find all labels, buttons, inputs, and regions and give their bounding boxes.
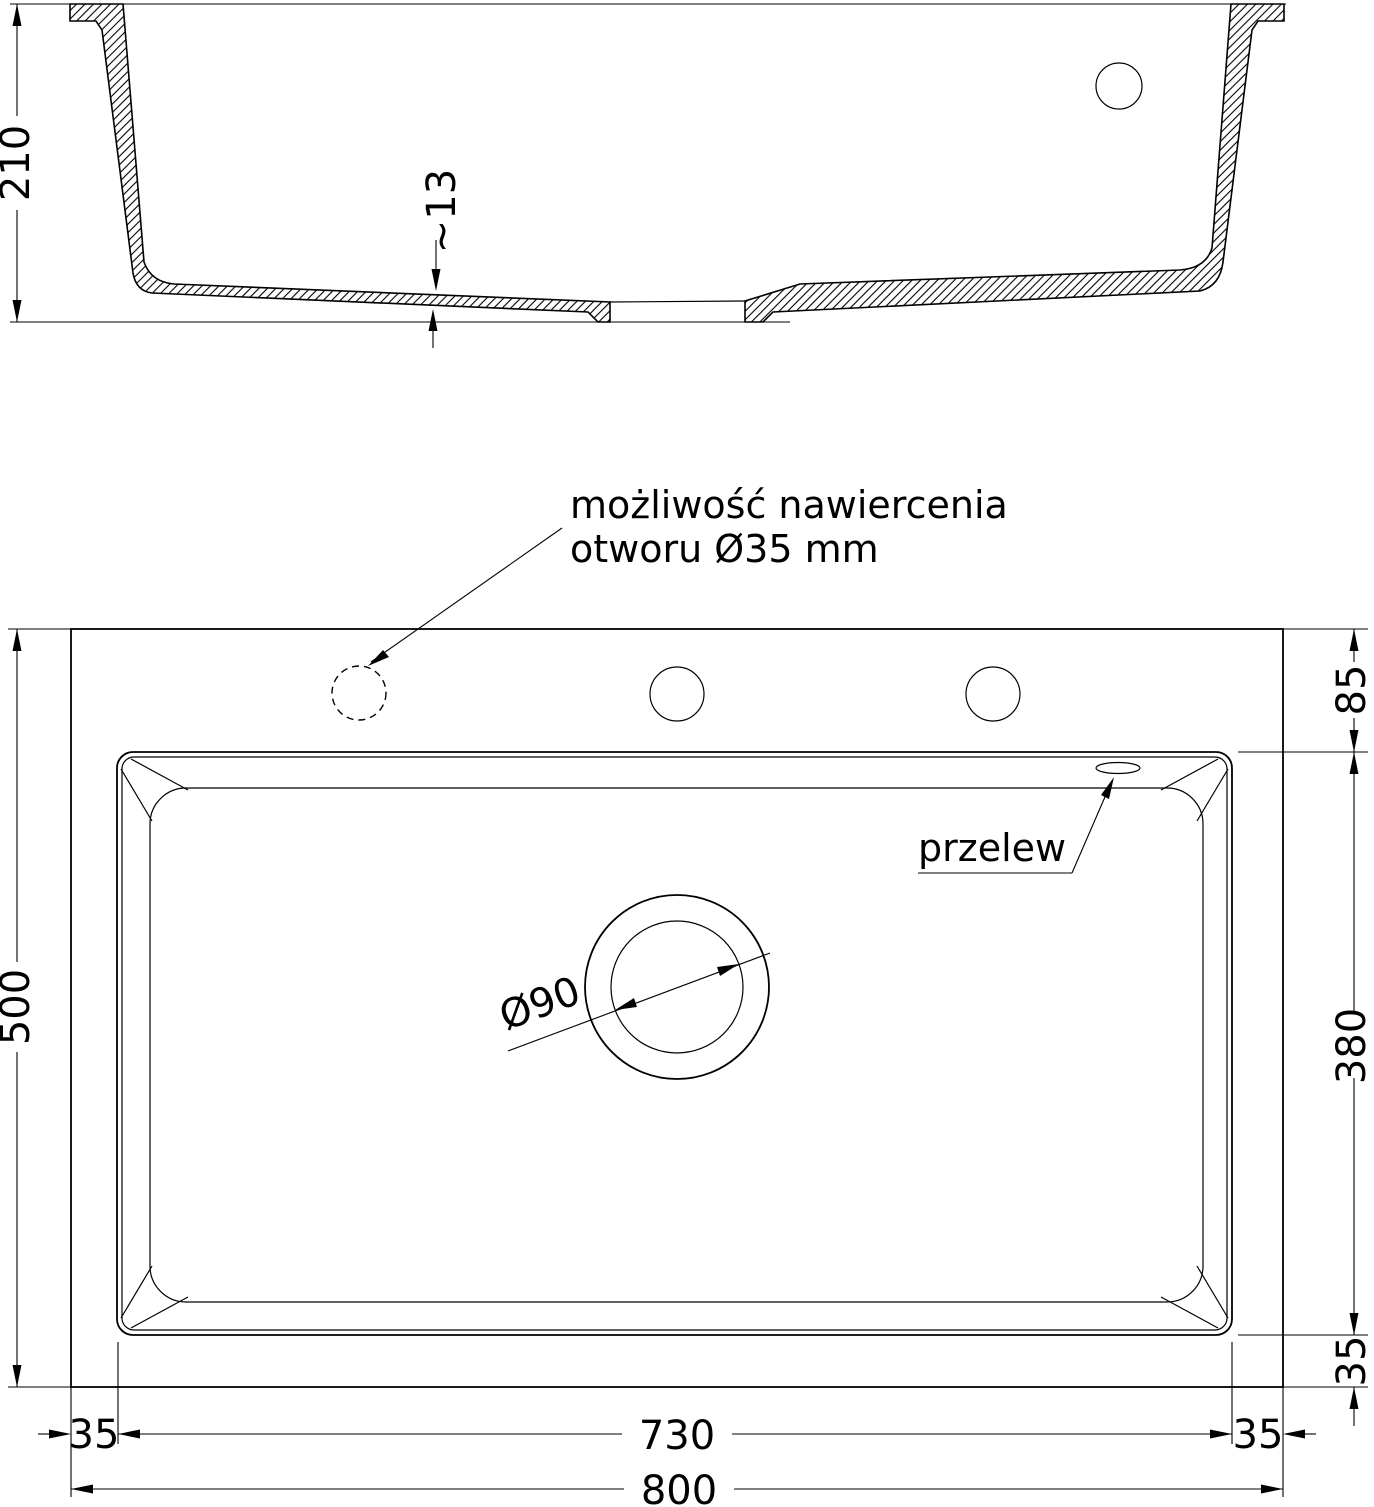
plan-right-offset-dimension: 35	[1233, 1412, 1316, 1458]
sink-technical-drawing-page: 210 ~13	[0, 0, 1374, 1507]
plan-overflow-slot	[1096, 763, 1140, 774]
overflow-callout: przelew	[918, 777, 1114, 873]
plan-drain-inner-circle	[611, 921, 743, 1053]
section-drain-gap-line	[610, 301, 745, 302]
plan-depth-dim-text: 500	[0, 969, 39, 1045]
section-thickness-dimension: ~13	[419, 169, 465, 348]
plan-bottom-offset-dimension: 35	[1283, 1336, 1374, 1426]
arrowhead-lower-left	[615, 998, 637, 1010]
plan-bowl-depth-dim-text: 380	[1329, 1008, 1374, 1084]
section-left-wall-profile	[70, 4, 610, 322]
drill-note-line1: możliwość nawiercenia	[570, 483, 1008, 527]
section-thickness-dim-text: ~13	[419, 169, 465, 253]
arrowhead-upper-right	[717, 964, 739, 976]
plan-drain-outer-circle	[585, 895, 769, 1079]
plan-width-dimension: 800	[71, 1468, 1283, 1507]
plan-top-offset-dim-text: 85	[1329, 665, 1374, 716]
plan-outer-rect	[71, 629, 1283, 1387]
section-right-wall-profile	[745, 4, 1284, 322]
plan-depth-dimension: 500	[0, 629, 71, 1387]
overflow-label-text: przelew	[918, 826, 1066, 870]
drill-note-callout: możliwość nawiercenia otworu Ø35 mm	[368, 483, 1008, 666]
plan-optional-drill-hole	[332, 666, 386, 720]
plan-width-dim-text: 800	[641, 1468, 717, 1507]
section-height-dimension: 210	[0, 4, 39, 322]
plan-left-offset-dimension: 35	[38, 1412, 119, 1458]
plan-faucet-hole-right	[966, 667, 1020, 721]
plan-bowl-width-dimension: 730	[118, 1413, 1232, 1459]
technical-drawing: 210 ~13	[0, 0, 1374, 1507]
plan-right-offset-dim-text: 35	[1233, 1412, 1284, 1458]
arrowhead-drill-note	[368, 650, 389, 666]
arrowhead-down	[432, 269, 441, 291]
drain-diameter-dim-text: Ø90	[493, 968, 586, 1040]
arrowhead-down	[13, 300, 22, 322]
plan-view: Ø90 przelew możliwość nawiercenia otworu…	[0, 483, 1374, 1507]
section-height-dim-text: 210	[0, 125, 39, 201]
plan-faucet-hole-center	[650, 667, 704, 721]
section-view: 210 ~13	[0, 4, 1286, 348]
drill-note-line2: otworu Ø35 mm	[570, 527, 879, 571]
drain-diameter-dimension: Ø90	[493, 953, 770, 1051]
arrowhead-up	[13, 4, 22, 26]
plan-bottom-offset-dim-text: 35	[1329, 1336, 1374, 1387]
plan-top-offset-dimension: 85	[1238, 629, 1374, 752]
arrowhead-up	[429, 309, 438, 331]
plan-bowl-width-dim-text: 730	[639, 1413, 715, 1459]
plan-left-offset-dim-text: 35	[69, 1412, 120, 1458]
section-overflow-hole	[1096, 63, 1142, 109]
plan-bowl-depth-dimension: 380	[1238, 752, 1374, 1335]
